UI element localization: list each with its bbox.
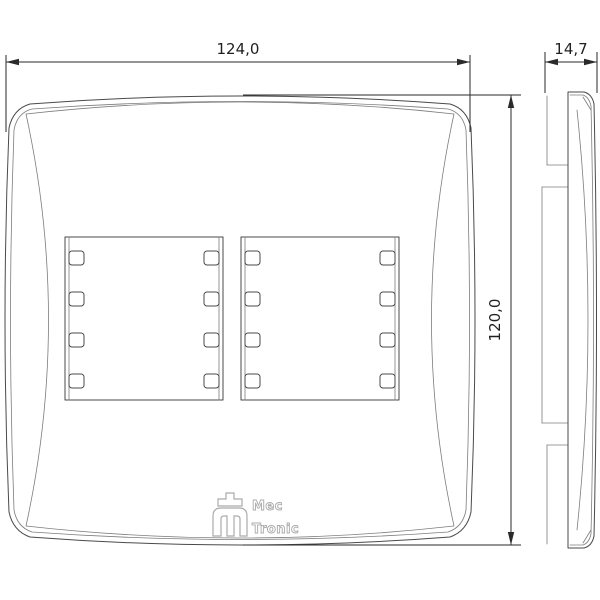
opening-outer-rect: [241, 237, 399, 400]
clip-notch: [380, 374, 395, 388]
side-bottom-chamfer: [583, 530, 591, 543]
clip-notch: [69, 251, 84, 265]
arrow-bottom: [508, 532, 514, 545]
clip-notch: [245, 292, 260, 306]
arrow-right: [584, 59, 597, 65]
plate-outer-edge: [5, 96, 475, 545]
opening-outer-rect: [65, 237, 223, 400]
arrow-left: [6, 59, 19, 65]
mectronic-m-logo-icon: [213, 493, 247, 536]
side-view: [542, 92, 597, 548]
clip-notch: [245, 374, 260, 388]
height-dimension-value: 120,0: [486, 299, 504, 342]
chassis-profile: [542, 96, 568, 544]
clip-notch: [204, 292, 219, 306]
side-top-chamfer: [583, 97, 591, 110]
technical-drawing-canvas: Mec Tronic 124,0: [0, 0, 600, 600]
depth-dimension: 14,7: [545, 40, 597, 93]
depth-dimension-value: 14,7: [554, 40, 587, 58]
width-dimension: 124,0: [6, 40, 470, 132]
clip-notch: [204, 251, 219, 265]
logo-text-line2: Tronic: [252, 522, 299, 537]
clip-notch: [245, 333, 260, 347]
width-dimension-value: 124,0: [217, 40, 260, 58]
module-opening-right: [241, 237, 399, 400]
clip-notch: [69, 292, 84, 306]
clip-notch: [204, 374, 219, 388]
drawing-svg: Mec Tronic 124,0: [0, 0, 600, 600]
brand-logo: Mec Tronic: [213, 493, 299, 537]
plate-face-boundary: [26, 102, 454, 538]
arrow-top: [508, 95, 514, 108]
module-opening-left: [65, 237, 223, 400]
height-dimension: 120,0: [243, 95, 521, 545]
plate-side-face-curve: [577, 110, 588, 530]
clip-notch: [245, 251, 260, 265]
clip-notch: [69, 374, 84, 388]
clip-notch: [380, 251, 395, 265]
clip-notch: [69, 333, 84, 347]
arrow-left: [545, 59, 558, 65]
logo-text-line1: Mec: [252, 499, 283, 514]
plate-inner-edge: [11, 102, 470, 540]
front-view: Mec Tronic: [5, 96, 475, 545]
arrow-right: [457, 59, 470, 65]
clip-notch: [380, 333, 395, 347]
clip-notch: [204, 333, 219, 347]
clip-notch: [380, 292, 395, 306]
